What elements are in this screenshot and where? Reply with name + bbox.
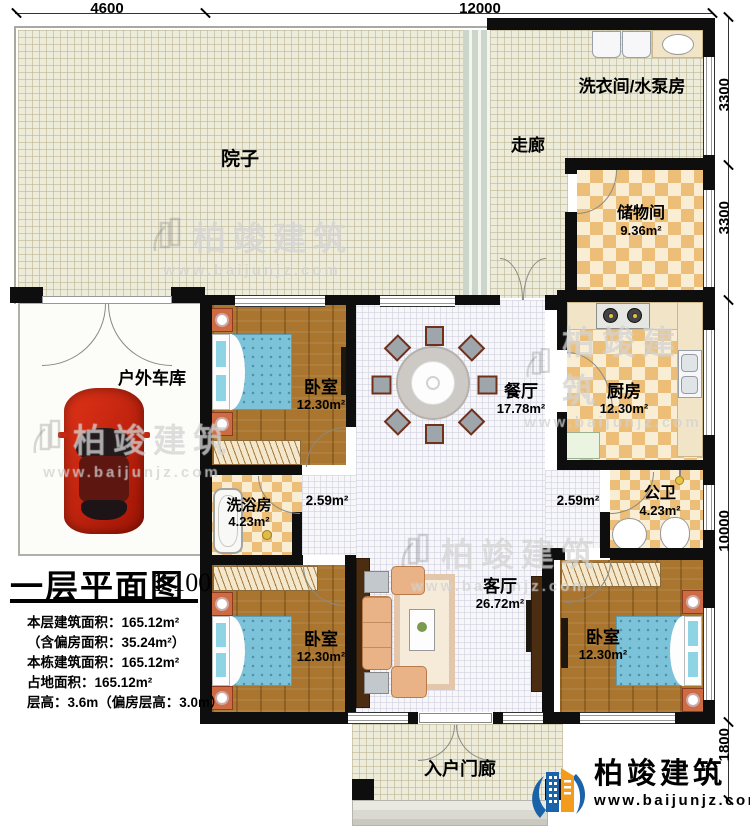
wall <box>703 530 715 608</box>
toilet-bowl <box>660 517 690 551</box>
kitchen-sink-basin <box>681 376 698 394</box>
porch-pier <box>352 779 374 800</box>
window <box>703 485 715 530</box>
dim-right-3300a: 3300 <box>716 78 733 111</box>
car-windshield <box>76 428 132 458</box>
wall <box>557 302 567 350</box>
coffee-table-plant <box>417 622 427 632</box>
stat-floor-area: 本层建筑面积：165.12m² <box>27 611 179 631</box>
car-mirror <box>58 432 67 438</box>
bed-pillow <box>687 651 699 678</box>
wall <box>600 512 610 558</box>
armchair <box>391 566 425 595</box>
washing-machine <box>592 31 621 58</box>
wall <box>455 295 500 305</box>
stat-total-area: 本栋建筑面积：165.12m² <box>27 651 179 671</box>
bed-pillow <box>215 340 227 368</box>
wall <box>565 158 705 170</box>
sofa <box>362 596 392 670</box>
wall <box>675 712 715 724</box>
garage-door-strip <box>42 296 172 304</box>
wall <box>610 548 715 560</box>
room-label-garage: 户外车库 <box>118 370 186 388</box>
nightstand <box>210 592 233 616</box>
bed-pillow <box>215 622 227 648</box>
dining-table-center <box>426 376 440 390</box>
company-logo: 柏竣建筑 www.baijunjz.com <box>530 760 750 824</box>
courtyard-pier <box>10 287 43 303</box>
dim-right-1800: 1800 <box>716 728 733 761</box>
entry-door-leaf <box>419 713 492 723</box>
armchair <box>391 666 427 698</box>
wall <box>557 290 715 302</box>
wall <box>487 18 715 30</box>
porch-steps <box>352 800 548 826</box>
window <box>703 608 715 700</box>
wall <box>200 555 303 565</box>
fridge <box>566 432 600 459</box>
window <box>703 330 715 435</box>
wall <box>200 295 212 724</box>
dim-top-12000: 12000 <box>459 0 501 17</box>
nightstand <box>210 412 233 436</box>
wall <box>292 512 302 555</box>
window <box>235 295 325 307</box>
wall <box>542 548 554 724</box>
area-label-hall-left: 2.59m² <box>306 494 349 508</box>
stat-story-height: 层高：3.6m（偏房层高：3.0m） <box>27 691 224 711</box>
laundry-sink <box>662 34 694 55</box>
bed-pillow <box>687 620 699 647</box>
wall <box>345 555 356 724</box>
company-name: 柏竣建筑 <box>594 760 750 789</box>
room-label-living: 客厅 26.72m² <box>476 578 524 610</box>
side-table <box>364 571 389 593</box>
stat-annex-area: （含偏房面积：35.24m²） <box>27 631 185 651</box>
company-logo-text: 柏竣建筑 www.baijunjz.com <box>594 760 750 808</box>
tv <box>561 618 568 668</box>
kitchen-sink-basin <box>681 354 698 372</box>
room-label-toilet: 公卫 4.23m² <box>639 486 680 517</box>
company-logo-icon <box>530 760 588 824</box>
wall <box>557 460 715 470</box>
courtyard-pier <box>171 287 205 303</box>
toilet-sink <box>612 518 647 551</box>
shower-knob <box>262 530 272 540</box>
wall <box>200 712 348 724</box>
company-website: www.baijunjz.com <box>594 793 750 808</box>
bed-pillow <box>215 652 227 678</box>
side-table <box>364 672 389 694</box>
wall <box>565 158 577 174</box>
dim-right-3300b: 3300 <box>716 201 733 234</box>
room-label-courtyard: 院子 <box>221 150 259 170</box>
room-label-dining: 餐厅 17.78m² <box>497 383 545 415</box>
stove-burner-dot <box>633 314 637 318</box>
room-label-bath: 洗浴房 4.23m² <box>226 498 271 528</box>
room-label-porch: 入户门廊 <box>424 760 496 779</box>
window <box>380 295 455 307</box>
bed-pillow <box>215 374 227 402</box>
window <box>703 190 715 287</box>
wall <box>408 712 418 724</box>
dim-top-4600: 4600 <box>90 0 123 17</box>
dining-chair <box>372 376 392 395</box>
dim-right-10000: 10000 <box>716 510 733 552</box>
dining-chair <box>425 424 444 444</box>
tv <box>526 600 531 652</box>
nightstand <box>682 688 704 712</box>
wardrobe <box>213 440 301 465</box>
hall-left-floor <box>302 475 356 555</box>
window <box>503 712 543 724</box>
wall <box>493 712 503 724</box>
stove-burner-dot <box>609 314 613 318</box>
stat-footprint: 占地面积：165.12m² <box>27 671 152 691</box>
car-cabin <box>79 456 129 502</box>
hall-right-floor <box>545 470 600 548</box>
title-underline <box>10 599 198 603</box>
floor-plan: 4600 12000 3300 3300 10000 1800 <box>0 0 750 833</box>
plan-scale: 1:100 <box>152 568 211 598</box>
wall <box>200 465 302 475</box>
area-label-hall-right: 2.59m² <box>557 494 600 508</box>
walkway-strip <box>463 30 490 298</box>
wall <box>703 18 715 57</box>
room-label-bedroom-right: 卧室 12.30m² <box>579 629 627 661</box>
nightstand <box>682 590 704 614</box>
dimension-line-right <box>728 17 729 800</box>
wall <box>200 295 235 305</box>
dining-chair <box>478 376 498 395</box>
nightstand <box>210 308 233 332</box>
wall <box>557 412 567 460</box>
pull-lamp <box>675 476 684 485</box>
dining-chair <box>425 326 444 346</box>
window <box>580 712 675 724</box>
room-label-laundry: 洗衣间/水泵房 <box>579 78 686 96</box>
room-label-storage: 储物间 9.36m² <box>617 206 665 237</box>
room-label-bedroom-top: 卧室 12.30m² <box>297 379 345 411</box>
window <box>348 712 408 724</box>
window <box>703 57 715 155</box>
car-mirror <box>141 432 150 438</box>
wall <box>543 712 580 724</box>
washing-machine <box>622 31 651 58</box>
room-label-bedroom-left: 卧室 12.30m² <box>297 631 345 663</box>
room-label-kitchen: 厨房 12.30m² <box>600 383 648 415</box>
wall <box>565 212 577 292</box>
wall <box>346 302 356 427</box>
room-label-corridor: 走廊 <box>511 137 545 155</box>
